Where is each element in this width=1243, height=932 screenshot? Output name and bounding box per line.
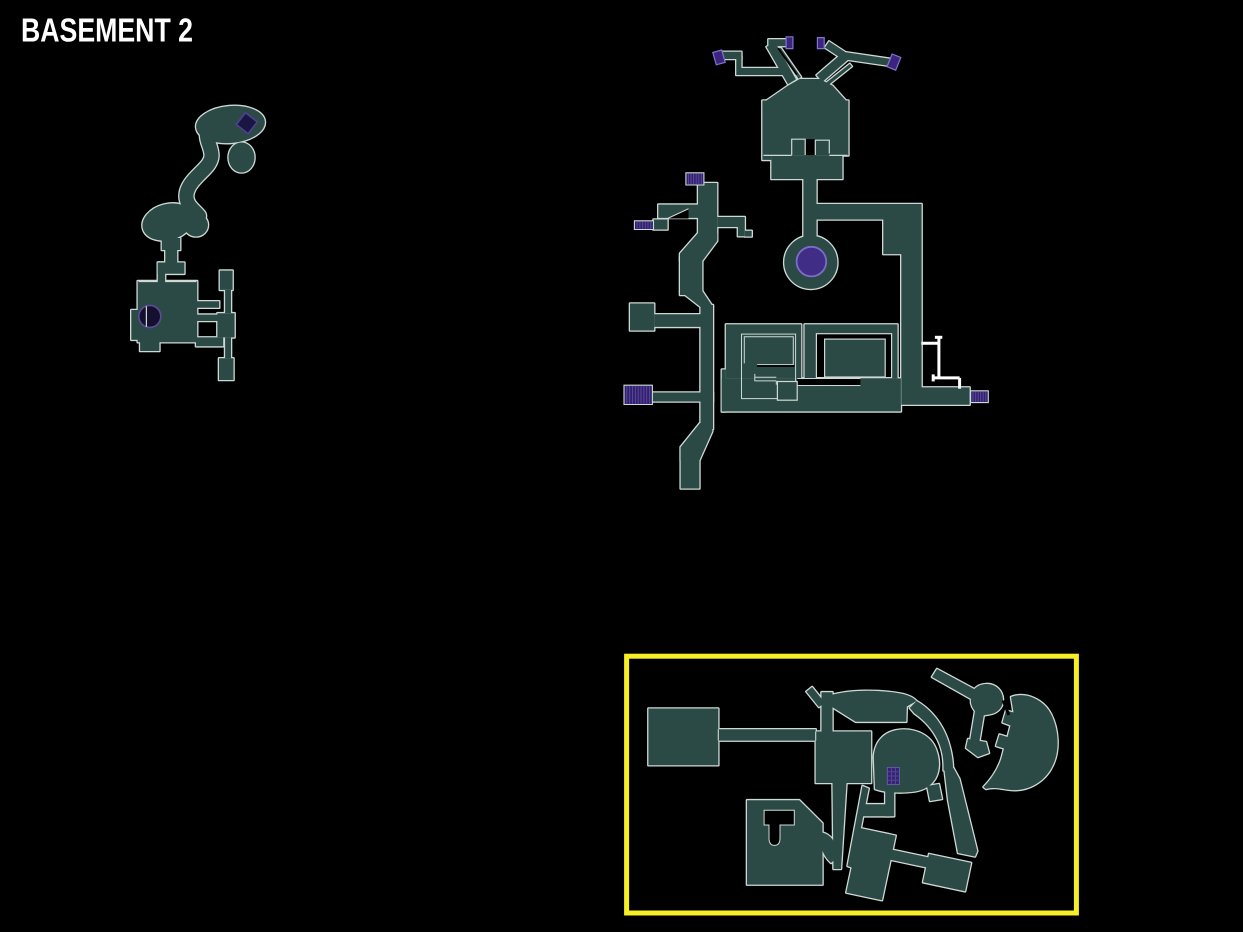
svg-text:BASEMENT 2: BASEMENT 2 (21, 12, 193, 49)
